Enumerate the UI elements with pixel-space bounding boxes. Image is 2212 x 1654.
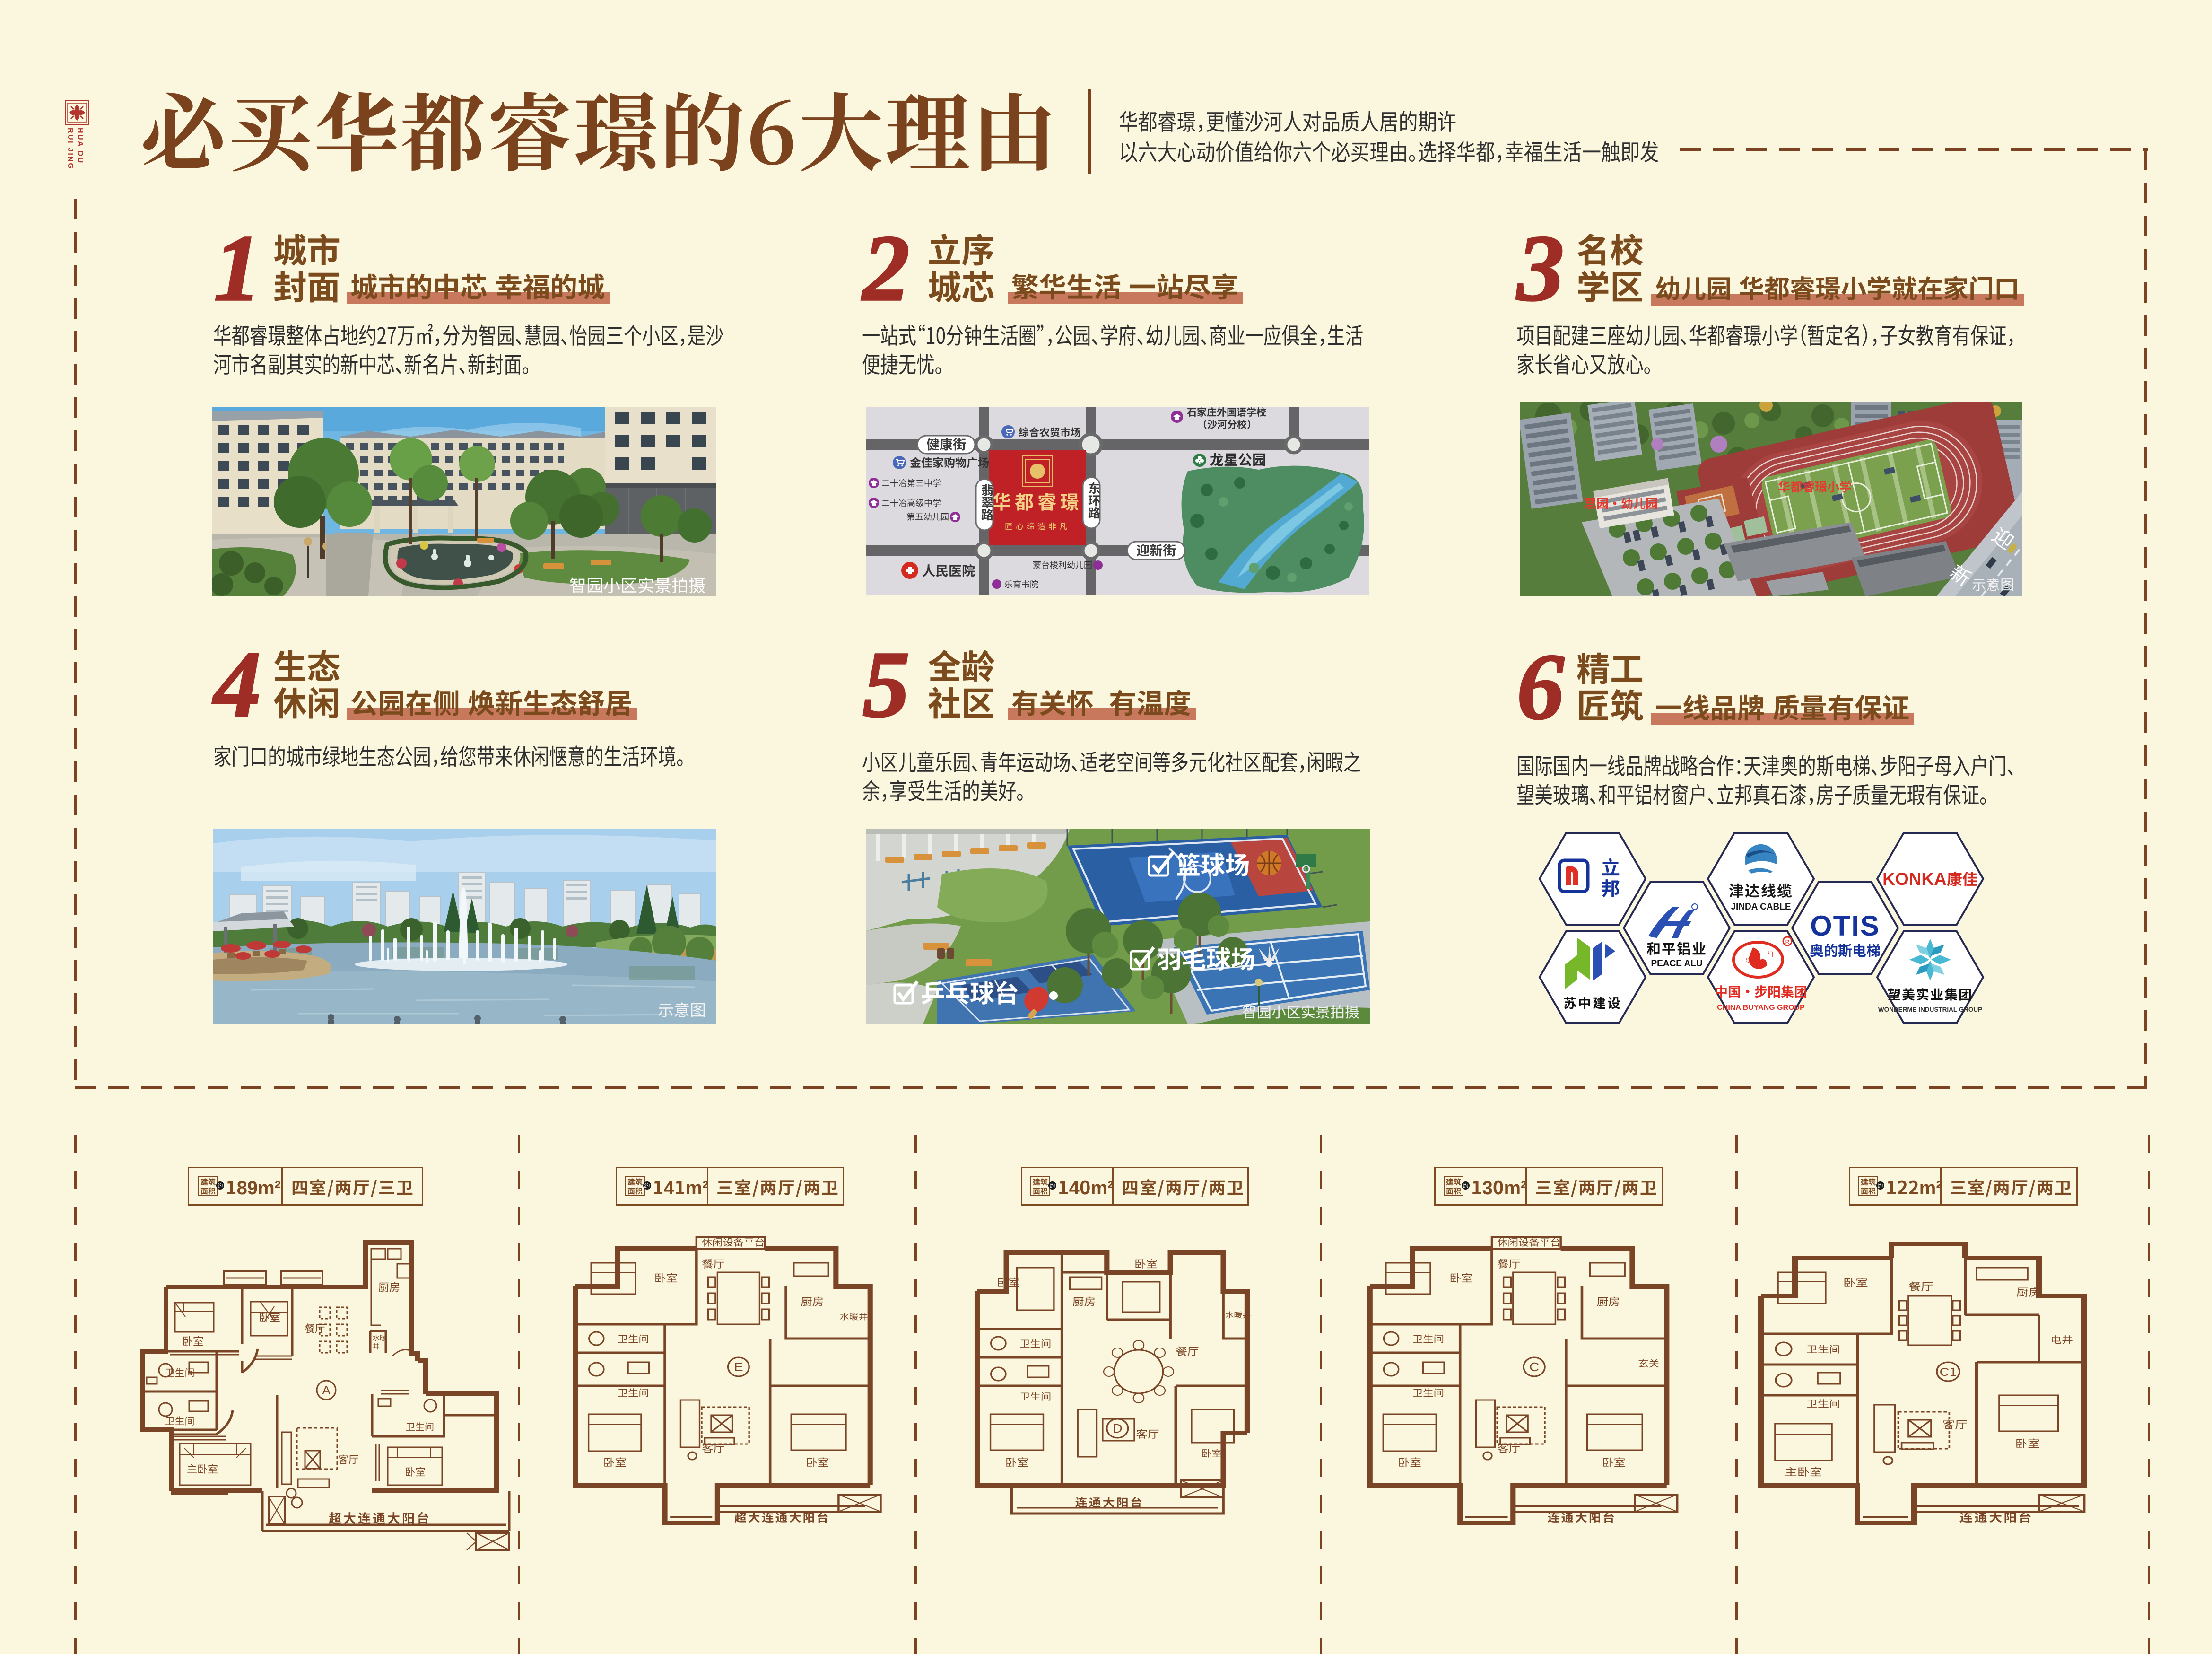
svg-text:步: 步 xyxy=(1745,956,1751,965)
svg-text:智园小区实景拍摄: 智园小区实景拍摄 xyxy=(569,572,705,596)
svg-text:卫生间: 卫生间 xyxy=(618,1331,649,1345)
svg-text:卫生间: 卫生间 xyxy=(618,1385,649,1399)
svg-text:卧室: 卧室 xyxy=(997,1275,1020,1290)
svg-text:金佳家购物广场: 金佳家购物广场 xyxy=(910,454,989,470)
svg-text:龙星公园: 龙星公园 xyxy=(1210,448,1266,469)
svg-text:厨房: 厨房 xyxy=(1597,1294,1620,1309)
svg-text:餐厅: 餐厅 xyxy=(702,1255,725,1270)
svg-text:阳: 阳 xyxy=(1767,949,1773,958)
svg-text:卧室: 卧室 xyxy=(1449,1270,1472,1285)
svg-text:水暖井: 水暖井 xyxy=(1226,1309,1251,1320)
svg-text:二十冶高级中学: 二十冶高级中学 xyxy=(881,497,941,509)
svg-text:示意图: 示意图 xyxy=(658,998,706,1021)
svg-text:奥的斯电梯: 奥的斯电梯 xyxy=(1810,939,1881,960)
svg-text:卫生间: 卫生间 xyxy=(1806,1342,1840,1356)
svg-text:智园小区实景拍摄: 智园小区实景拍摄 xyxy=(1242,1000,1359,1022)
svg-text:餐厅: 餐厅 xyxy=(1176,1343,1199,1358)
svg-text:卫生间: 卫生间 xyxy=(165,1365,195,1380)
svg-text:D: D xyxy=(1113,1418,1123,1436)
svg-text:示意图: 示意图 xyxy=(1972,573,2014,594)
svg-text:苏中建设: 苏中建设 xyxy=(1563,993,1622,1012)
svg-text:电井: 电井 xyxy=(2050,1332,2073,1346)
svg-text:厨房: 厨房 xyxy=(801,1293,824,1308)
svg-text:餐厅: 餐厅 xyxy=(1908,1278,1933,1294)
svg-text:二十冶第三中学: 二十冶第三中学 xyxy=(881,477,941,489)
svg-text:JINDA CABLE: JINDA CABLE xyxy=(1731,902,1791,912)
svg-text:卫生间: 卫生间 xyxy=(406,1419,434,1433)
svg-text:WONDERME INDUSTRIAL GROUP: WONDERME INDUSTRIAL GROUP xyxy=(1878,1006,1982,1013)
svg-text:C: C xyxy=(1529,1357,1539,1375)
svg-text:邦: 邦 xyxy=(1601,874,1620,901)
svg-text:主卧室: 主卧室 xyxy=(1785,1464,1822,1479)
svg-text:C1: C1 xyxy=(1940,1363,1957,1379)
svg-text:休闲设备平台: 休闲设备平台 xyxy=(1497,1235,1560,1249)
svg-text:卧室: 卧室 xyxy=(405,1464,426,1479)
svg-text:卫生间: 卫生间 xyxy=(1806,1396,1840,1410)
svg-text:中国·步阳集团: 中国·步阳集团 xyxy=(1715,982,1807,1001)
svg-text:超大连通大阳台: 超大连通大阳台 xyxy=(329,1508,431,1527)
svg-text:PEACE ALU: PEACE ALU xyxy=(1651,959,1702,969)
svg-text:第五幼儿园: 第五幼儿园 xyxy=(906,510,949,523)
svg-text:KONKA康佳: KONKA康佳 xyxy=(1882,867,1978,890)
svg-text:玄关: 玄关 xyxy=(1638,1356,1659,1370)
svg-text:连通大阳台: 连通大阳台 xyxy=(1075,1495,1144,1510)
svg-text:CHINA BUYANG GROUP: CHINA BUYANG GROUP xyxy=(1717,1004,1805,1012)
svg-text:卧室: 卧室 xyxy=(806,1454,829,1469)
svg-text:卧室: 卧室 xyxy=(1602,1454,1625,1470)
svg-text:津达线缆: 津达线缆 xyxy=(1729,879,1793,901)
svg-text:综合农贸市场: 综合农贸市场 xyxy=(1019,424,1081,439)
svg-text:翡翠路: 翡翠路 xyxy=(979,484,996,521)
svg-text:人民医院: 人民医院 xyxy=(922,561,975,580)
svg-text:卫生间: 卫生间 xyxy=(1412,1385,1444,1399)
svg-text:卫生间: 卫生间 xyxy=(1019,1336,1051,1350)
svg-text:卧室: 卧室 xyxy=(1201,1446,1222,1460)
svg-text:和平铝业: 和平铝业 xyxy=(1646,937,1707,958)
svg-text:羽毛球场: 羽毛球场 xyxy=(1157,940,1255,975)
svg-text:R: R xyxy=(1785,938,1790,946)
svg-text:厨房: 厨房 xyxy=(378,1278,400,1295)
svg-text:餐厅: 餐厅 xyxy=(1497,1256,1520,1271)
svg-text:卧室: 卧室 xyxy=(1398,1454,1421,1470)
svg-text:厨房: 厨房 xyxy=(1072,1294,1096,1309)
svg-text:望美实业集团: 望美实业集团 xyxy=(1888,985,1973,1004)
svg-text:篮球场: 篮球场 xyxy=(1176,846,1250,881)
svg-text:卧室: 卧室 xyxy=(1843,1275,1868,1290)
svg-text:客厅: 客厅 xyxy=(1497,1440,1520,1455)
svg-text:匠心缔造非凡: 匠心缔造非凡 xyxy=(1005,520,1070,532)
svg-text:（沙河分校）: （沙河分校） xyxy=(1197,417,1257,431)
svg-text:乒乓球台: 乒乓球台 xyxy=(921,974,1019,1009)
svg-text:客厅: 客厅 xyxy=(1136,1426,1159,1441)
svg-text:餐厅: 餐厅 xyxy=(305,1321,325,1336)
svg-text:A: A xyxy=(322,1381,331,1398)
svg-text:乐育书院: 乐育书院 xyxy=(1004,578,1038,590)
svg-text:卧室: 卧室 xyxy=(182,1332,204,1348)
svg-text:井: 井 xyxy=(373,1341,380,1351)
svg-text:迎新街: 迎新街 xyxy=(1136,541,1176,560)
svg-text:慧园·幼儿园: 慧园·幼儿园 xyxy=(1584,494,1658,512)
svg-text:厨房: 厨房 xyxy=(2016,1284,2041,1299)
svg-text:卧室: 卧室 xyxy=(1005,1454,1028,1470)
svg-text:客厅: 客厅 xyxy=(702,1440,725,1455)
svg-text:卫生间: 卫生间 xyxy=(1412,1331,1444,1345)
svg-text:健康街: 健康街 xyxy=(926,435,966,454)
svg-text:主卧室: 主卧室 xyxy=(187,1461,218,1476)
svg-text:卧室: 卧室 xyxy=(654,1269,678,1285)
svg-text:E: E xyxy=(734,1357,743,1375)
svg-text:卫生间: 卫生间 xyxy=(165,1414,195,1428)
svg-text:休闲设备平台: 休闲设备平台 xyxy=(702,1235,765,1249)
svg-text:华都睿璟: 华都睿璟 xyxy=(992,487,1083,515)
svg-text:卫生间: 卫生间 xyxy=(1019,1389,1051,1403)
svg-text:卧室: 卧室 xyxy=(603,1454,627,1469)
svg-text:卧室: 卧室 xyxy=(259,1309,280,1325)
svg-text:卧室: 卧室 xyxy=(2015,1435,2040,1451)
svg-text:客厅: 客厅 xyxy=(1942,1417,1968,1432)
svg-text:OTIS: OTIS xyxy=(1810,910,1880,942)
svg-text:蒙台梭利幼儿园: 蒙台梭利幼儿园 xyxy=(1033,559,1092,571)
svg-text:客厅: 客厅 xyxy=(338,1452,359,1467)
svg-text:东环路: 东环路 xyxy=(1086,482,1103,519)
svg-text:水暖井: 水暖井 xyxy=(840,1310,868,1322)
svg-text:卧室: 卧室 xyxy=(1134,1256,1158,1271)
svg-text:华都睿璟小学: 华都睿璟小学 xyxy=(1778,478,1852,495)
